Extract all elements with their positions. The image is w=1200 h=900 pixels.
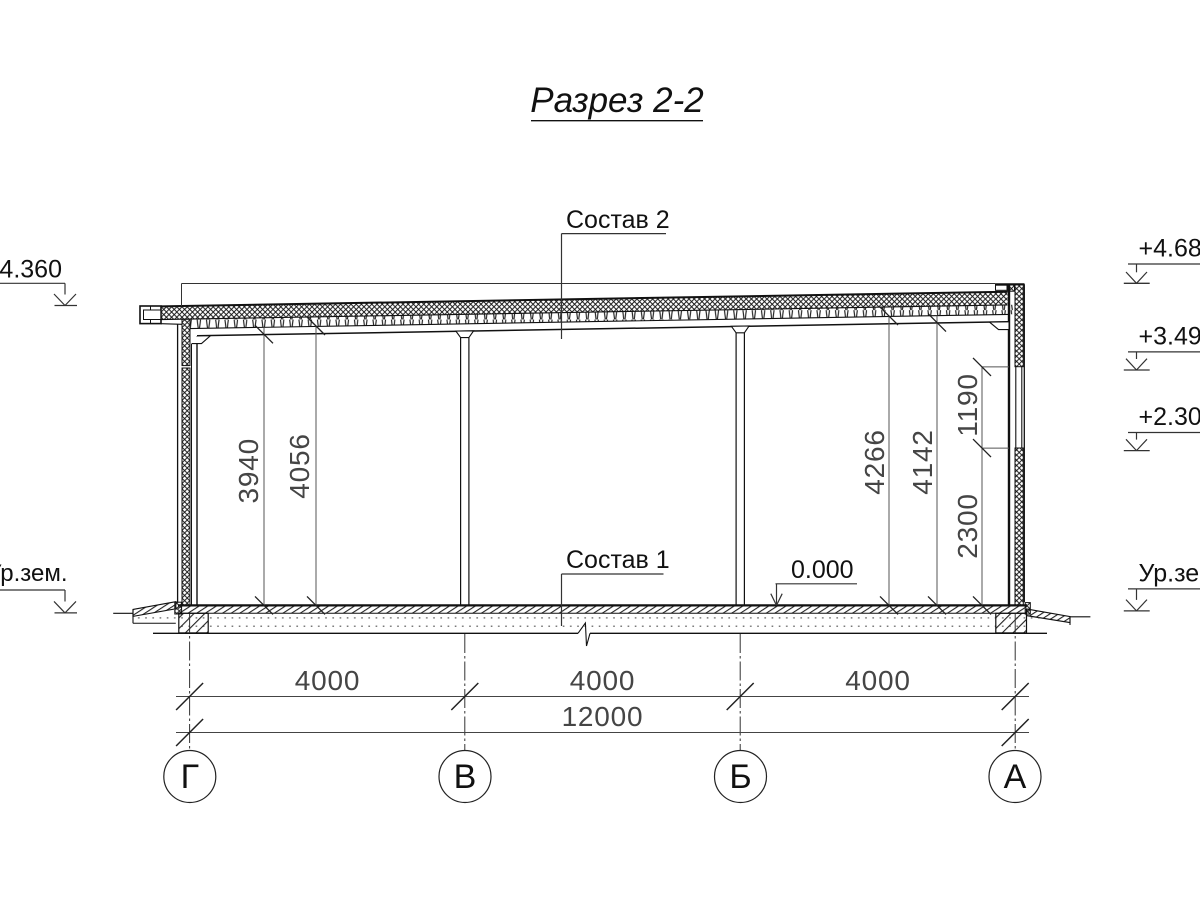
svg-text:А: А	[1004, 758, 1027, 796]
svg-text:0.000: 0.000	[791, 556, 854, 584]
svg-text:+3.490: +3.490	[1139, 323, 1200, 351]
svg-text:+4.680: +4.680	[1139, 235, 1200, 263]
svg-text:4000: 4000	[570, 665, 636, 696]
svg-text:Ур.зем.: Ур.зем.	[1139, 560, 1200, 588]
svg-text:+2.300: +2.300	[1139, 403, 1200, 431]
svg-text:4266: 4266	[859, 429, 890, 495]
svg-text:4000: 4000	[295, 665, 361, 696]
svg-text:4000: 4000	[845, 665, 911, 696]
svg-text:2300: 2300	[952, 493, 983, 559]
svg-text:4056: 4056	[284, 433, 315, 499]
svg-text:Ур.зем.: Ур.зем.	[0, 560, 68, 587]
svg-text:Состав 2: Состав 2	[566, 206, 670, 234]
svg-text:4142: 4142	[907, 429, 938, 495]
svg-text:Г: Г	[181, 758, 199, 796]
svg-text:1190: 1190	[952, 373, 983, 436]
svg-text:Состав 1: Состав 1	[566, 546, 670, 574]
svg-text:+4.360: +4.360	[0, 256, 62, 284]
svg-text:В: В	[454, 758, 477, 796]
svg-text:Разрез 2-2: Разрез 2-2	[530, 81, 703, 120]
svg-text:12000: 12000	[562, 701, 644, 732]
svg-text:3940: 3940	[233, 438, 264, 504]
svg-text:Б: Б	[729, 758, 751, 796]
